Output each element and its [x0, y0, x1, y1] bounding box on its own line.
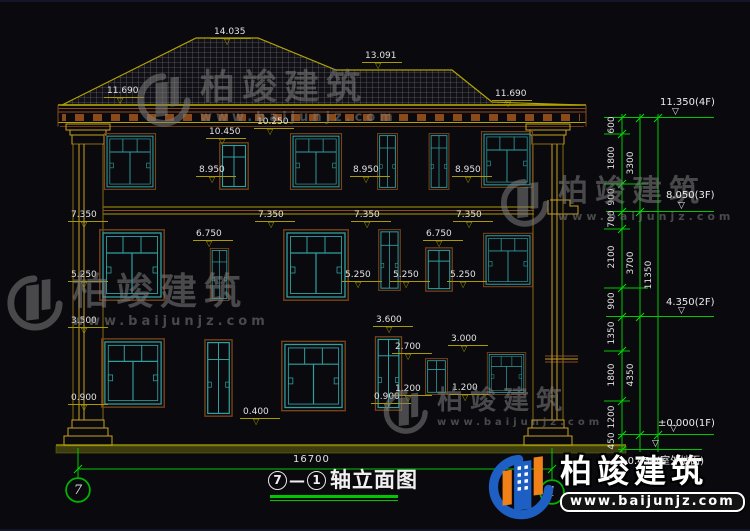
elevation-mark: 6.750▽ [423, 229, 463, 247]
brand-building-icon [486, 448, 556, 524]
elevation-mark: 5.250▽ [390, 270, 430, 288]
elevation-mark: 8.950▽ [196, 165, 236, 183]
elevation-mark: 10.450▽ [206, 127, 246, 145]
elevation-mark: 7.350▽ [68, 210, 108, 228]
watermark-text: 柏竣建筑 [437, 387, 603, 415]
elevation-mark: 14.035▽ [211, 27, 251, 45]
elevation-triangle-icon: ▽ [81, 405, 108, 411]
elevation-triangle-icon: ▽ [219, 139, 246, 145]
elevation-triangle-icon: ▽ [355, 282, 382, 288]
floor-level-label: ±0.000(1F) [658, 418, 715, 429]
bottom-total-dimension: 16700 [293, 454, 330, 465]
elevation-triangle-icon: ▽ [224, 39, 251, 45]
watermark-url: www.baijunjz.com [200, 110, 397, 125]
elevation-mark: 3.000▽ [448, 334, 488, 352]
dimension-text: 900 [607, 286, 617, 316]
elevation-mark: 7.350▽ [453, 210, 493, 228]
floor-level-line [620, 434, 714, 435]
elevation-triangle-icon: ▽ [405, 354, 432, 360]
elevation-triangle-icon: ▽ [363, 177, 390, 183]
title-dash: — [289, 471, 305, 490]
elevation-triangle-icon: ▽ [206, 241, 233, 247]
elevation-triangle-icon: ▽ [505, 101, 532, 107]
title-axis-start-circle: 7 [268, 471, 287, 490]
watermark: 柏竣建筑www.baijunjz.com [134, 70, 397, 128]
elevation-triangle-icon: ▽ [386, 327, 413, 333]
watermark: 柏竣建筑www.baijunjz.com [498, 176, 734, 228]
elevation-triangle-icon: ▽ [461, 346, 488, 352]
title-underline-thin [270, 500, 398, 501]
elevation-triangle-icon: ▽ [465, 177, 492, 183]
elevation-triangle-icon: ▽ [364, 222, 391, 228]
baijun-brand-logo: 柏竣建筑 www.baijunjz.com [486, 448, 745, 524]
watermark-text: 柏竣建筑 [72, 272, 269, 312]
axis-bubble-7: 7 [66, 478, 90, 502]
elevation-mark: 8.950▽ [452, 165, 492, 183]
elevation-mark: 11.690▽ [492, 89, 532, 107]
title-axis-end-circle: 1 [307, 471, 326, 490]
floor-level-triangle-icon: ▽ [670, 425, 677, 434]
floor-level-line [650, 316, 714, 317]
floor-level-triangle-icon: ▽ [652, 440, 659, 449]
elevation-mark: 2.700▽ [392, 342, 432, 360]
dimension-text: 1800 [607, 360, 617, 390]
floor-level-label: 11.350(4F) [660, 97, 715, 108]
elevation-mark: 8.950▽ [350, 165, 390, 183]
watermark: 柏竣建筑www.baijunjz.com [381, 387, 603, 435]
elevation-triangle-icon: ▽ [403, 282, 430, 288]
watermark-text: 柏竣建筑 [200, 70, 397, 108]
elevation-triangle-icon: ▽ [209, 177, 236, 183]
title-underline [270, 495, 398, 498]
elevation-triangle-icon: ▽ [253, 419, 280, 425]
floor-level-line [650, 211, 714, 212]
cad-elevation-screenshot: 11.690▽14.035▽13.091▽11.690▽10.450▽10.25… [0, 0, 750, 531]
floor-level-triangle-icon: ▽ [678, 307, 685, 316]
dimension-text: 600 [607, 110, 617, 140]
dimension-text: 2100 [607, 242, 617, 272]
dimension-text: 4350 [626, 360, 636, 390]
elevation-triangle-icon: ▽ [81, 222, 108, 228]
floor-level-triangle-icon: ▽ [672, 108, 679, 117]
elevation-triangle-icon: ▽ [375, 63, 402, 69]
elevation-triangle-icon: ▽ [268, 222, 295, 228]
floor-level-label: 4.350(2F) [666, 297, 715, 308]
floor-level-triangle-icon: ▽ [678, 202, 685, 211]
floor-level-label: -0.450(室外地面) [624, 452, 704, 467]
watermark-logo-icon [498, 176, 550, 228]
watermark: 柏竣建筑www.baijunjz.com [4, 272, 269, 332]
dimension-text: 11350 [644, 260, 654, 290]
watermark-logo-icon [381, 387, 429, 435]
elevation-mark: 5.250▽ [342, 270, 382, 288]
elevation-triangle-icon: ▽ [460, 282, 487, 288]
drawing-title: 7 — 1 轴立面图 [268, 469, 418, 491]
elevation-mark: 7.350▽ [255, 210, 295, 228]
watermark-url: www.baijunjz.com [558, 210, 734, 223]
floor-level-label: 8.050(3F) [666, 190, 715, 201]
elevation-mark: 6.750▽ [193, 229, 233, 247]
elevation-mark: 0.900▽ [68, 393, 108, 411]
elevation-triangle-icon: ▽ [267, 129, 294, 135]
dimension-text: 1350 [607, 318, 617, 348]
elevation-mark: 0.400▽ [240, 407, 280, 425]
watermark-url: www.baijunjz.com [437, 417, 603, 428]
elevation-mark: 7.350▽ [351, 210, 391, 228]
elevation-mark: 13.091▽ [362, 51, 402, 69]
watermark-logo-icon [134, 70, 192, 128]
elevation-triangle-icon: ▽ [436, 241, 463, 247]
brand-url: www.baijunjz.com [560, 492, 745, 512]
elevation-mark: 5.250▽ [447, 270, 487, 288]
dimension-text: 1800 [607, 143, 617, 173]
elevation-triangle-icon: ▽ [466, 222, 493, 228]
title-text: 轴立面图 [330, 469, 418, 491]
elevation-mark: 3.600▽ [373, 315, 413, 333]
watermark-url: www.baijunjz.com [72, 314, 269, 329]
dimension-text: 3700 [626, 248, 636, 278]
floor-level-line [620, 449, 702, 450]
floor-level-line [646, 117, 714, 118]
axis-number: 7 [74, 483, 82, 498]
watermark-logo-icon [4, 272, 64, 332]
